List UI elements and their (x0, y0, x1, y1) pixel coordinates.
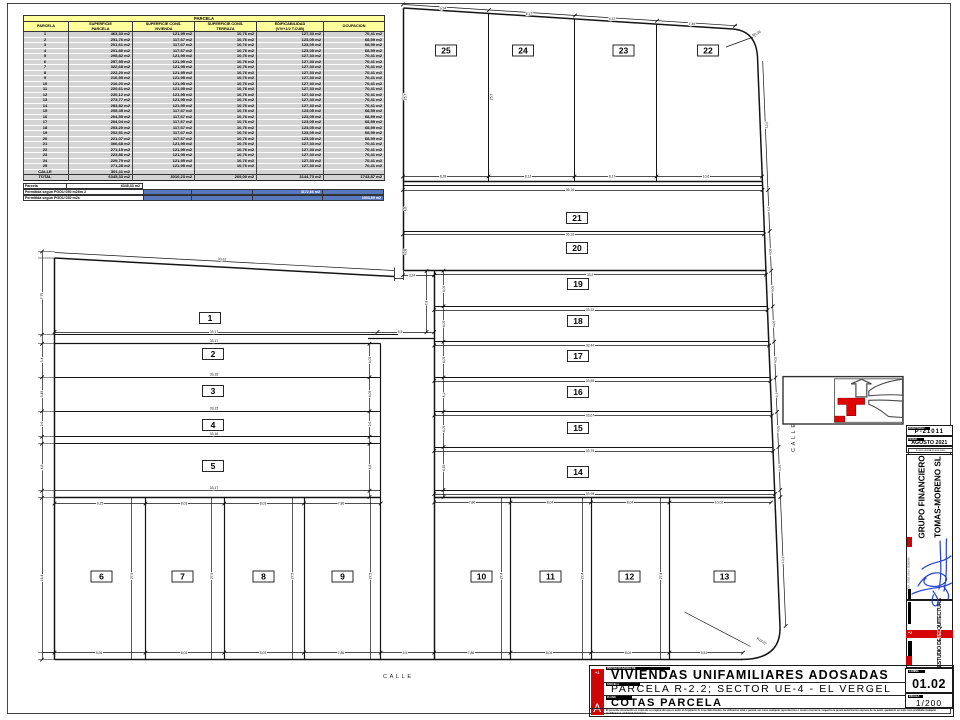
svg-text:2: 2 (211, 349, 216, 359)
svg-text:8,12: 8,12 (525, 175, 532, 179)
svg-text:33,2: 33,2 (587, 273, 594, 277)
svg-text:13: 13 (720, 572, 730, 582)
svg-text:33,95: 33,95 (586, 492, 595, 496)
svg-text:33,16: 33,16 (210, 432, 219, 436)
svg-text:R0,36: R0,36 (752, 30, 762, 38)
svg-text:7,86: 7,86 (338, 651, 345, 655)
svg-text:2,6: 2,6 (368, 422, 372, 427)
svg-text:4: 4 (211, 420, 216, 430)
svg-text:33,79: 33,79 (586, 449, 595, 453)
svg-text:8,03: 8,03 (181, 651, 188, 655)
svg-text:4,05: 4,05 (368, 357, 372, 364)
svg-text:33,17: 33,17 (210, 330, 219, 334)
svg-text:4,05: 4,05 (442, 357, 446, 364)
svg-text:4,6: 4,6 (767, 206, 771, 211)
svg-text:8,04: 8,04 (547, 501, 554, 505)
svg-text:4,35: 4,35 (442, 465, 446, 472)
svg-text:6: 6 (99, 572, 104, 582)
svg-text:8,03: 8,03 (260, 651, 267, 655)
svg-text:4,05: 4,05 (773, 356, 777, 363)
svg-text:3,4: 3,4 (40, 358, 44, 363)
svg-text:36,33: 36,33 (566, 233, 575, 237)
svg-text:8: 8 (261, 572, 266, 582)
svg-text:24: 24 (518, 46, 528, 56)
svg-text:18: 18 (573, 316, 583, 326)
svg-text:8,04: 8,04 (546, 651, 553, 655)
svg-text:4,05: 4,05 (772, 320, 776, 327)
svg-text:25,7: 25,7 (490, 94, 494, 101)
svg-text:23: 23 (619, 46, 629, 56)
svg-text:8,04: 8,04 (625, 651, 632, 655)
svg-text:9,26: 9,26 (96, 651, 103, 655)
svg-text:4,8: 4,8 (40, 465, 44, 470)
svg-text:4,08: 4,08 (404, 249, 408, 256)
svg-text:33,17: 33,17 (210, 339, 219, 343)
svg-text:27,5: 27,5 (290, 573, 294, 580)
svg-text:CALLE: CALLE (383, 674, 414, 680)
svg-text:12: 12 (625, 572, 635, 582)
svg-text:20: 20 (572, 243, 582, 253)
svg-text:4,6: 4,6 (404, 207, 408, 212)
svg-text:33,55: 33,55 (586, 379, 595, 383)
svg-text:27,4: 27,4 (659, 573, 663, 580)
svg-text:33,18: 33,18 (210, 373, 219, 377)
svg-text:33,15: 33,15 (210, 407, 219, 411)
svg-text:8,17: 8,17 (609, 175, 616, 179)
svg-text:4,8: 4,8 (368, 465, 372, 470)
svg-text:33,32: 33,32 (586, 308, 595, 312)
svg-text:36,16: 36,16 (566, 188, 575, 192)
svg-text:33,67: 33,67 (586, 414, 595, 418)
svg-text:5,5: 5,5 (398, 330, 403, 334)
svg-text:17: 17 (573, 351, 583, 361)
svg-text:4,05: 4,05 (442, 321, 446, 328)
svg-text:7: 7 (180, 572, 185, 582)
svg-text:10: 10 (477, 572, 487, 582)
svg-text:7,75: 7,75 (40, 293, 44, 300)
svg-text:8,28: 8,28 (440, 175, 447, 179)
svg-text:33,44: 33,44 (586, 344, 595, 348)
svg-text:27,5: 27,5 (210, 573, 214, 580)
svg-text:27,4: 27,4 (580, 573, 584, 580)
svg-text:7,8: 7,8 (425, 301, 429, 306)
svg-text:9,25: 9,25 (97, 502, 104, 506)
svg-text:4,1: 4,1 (775, 392, 779, 397)
svg-text:5,51: 5,51 (701, 651, 708, 655)
svg-text:8,03: 8,03 (181, 502, 188, 506)
svg-text:8,17: 8,17 (526, 12, 533, 16)
svg-text:10,6: 10,6 (703, 175, 710, 179)
svg-text:3,24: 3,24 (409, 274, 416, 278)
svg-text:27,5: 27,5 (130, 573, 134, 580)
svg-text:4,05: 4,05 (442, 426, 446, 433)
svg-text:4,35: 4,35 (778, 464, 782, 471)
svg-text:4,1: 4,1 (442, 393, 446, 398)
svg-text:7,86: 7,86 (469, 501, 476, 505)
svg-text:7,86: 7,86 (468, 651, 475, 655)
svg-text:12,6: 12,6 (765, 121, 769, 128)
svg-text:8,04: 8,04 (627, 501, 634, 505)
svg-text:11: 11 (546, 572, 555, 582)
svg-text:4,08: 4,08 (768, 248, 772, 255)
svg-text:5,5: 5,5 (403, 651, 408, 655)
svg-text:CALLE: CALLE (791, 421, 797, 452)
svg-text:R10,22: R10,22 (756, 637, 767, 646)
svg-text:14: 14 (573, 467, 583, 477)
svg-text:27,4: 27,4 (499, 573, 503, 580)
svg-text:10,02: 10,02 (715, 501, 724, 505)
svg-text:19: 19 (573, 279, 583, 289)
svg-text:9,34: 9,34 (440, 6, 447, 10)
svg-text:5: 5 (211, 461, 216, 471)
svg-text:3: 3 (211, 386, 216, 396)
svg-text:4,05: 4,05 (771, 285, 775, 292)
svg-text:4,05: 4,05 (368, 391, 372, 398)
svg-text:13,3: 13,3 (781, 556, 785, 563)
svg-text:33,62: 33,62 (218, 257, 227, 261)
svg-text:21: 21 (572, 213, 582, 223)
svg-text:1: 1 (208, 313, 213, 323)
svg-text:27,5: 27,5 (368, 573, 372, 580)
svg-text:2,6: 2,6 (40, 422, 44, 427)
svg-text:4,05: 4,05 (442, 286, 446, 293)
svg-text:8,03: 8,03 (260, 502, 267, 506)
svg-text:22: 22 (703, 46, 713, 56)
svg-text:25,7: 25,7 (404, 94, 408, 101)
svg-text:33,17: 33,17 (210, 486, 219, 490)
svg-text:7,49: 7,49 (689, 22, 696, 26)
svg-text:7,86: 7,86 (338, 502, 345, 506)
svg-text:9: 9 (340, 572, 345, 582)
svg-text:15: 15 (573, 423, 583, 433)
svg-text:25: 25 (441, 46, 451, 56)
svg-text:4,05: 4,05 (776, 425, 780, 432)
svg-text:8,22: 8,22 (609, 17, 616, 21)
svg-text:3,45: 3,45 (40, 391, 44, 398)
svg-text:16: 16 (573, 387, 583, 397)
svg-text:16,4: 16,4 (40, 575, 44, 582)
